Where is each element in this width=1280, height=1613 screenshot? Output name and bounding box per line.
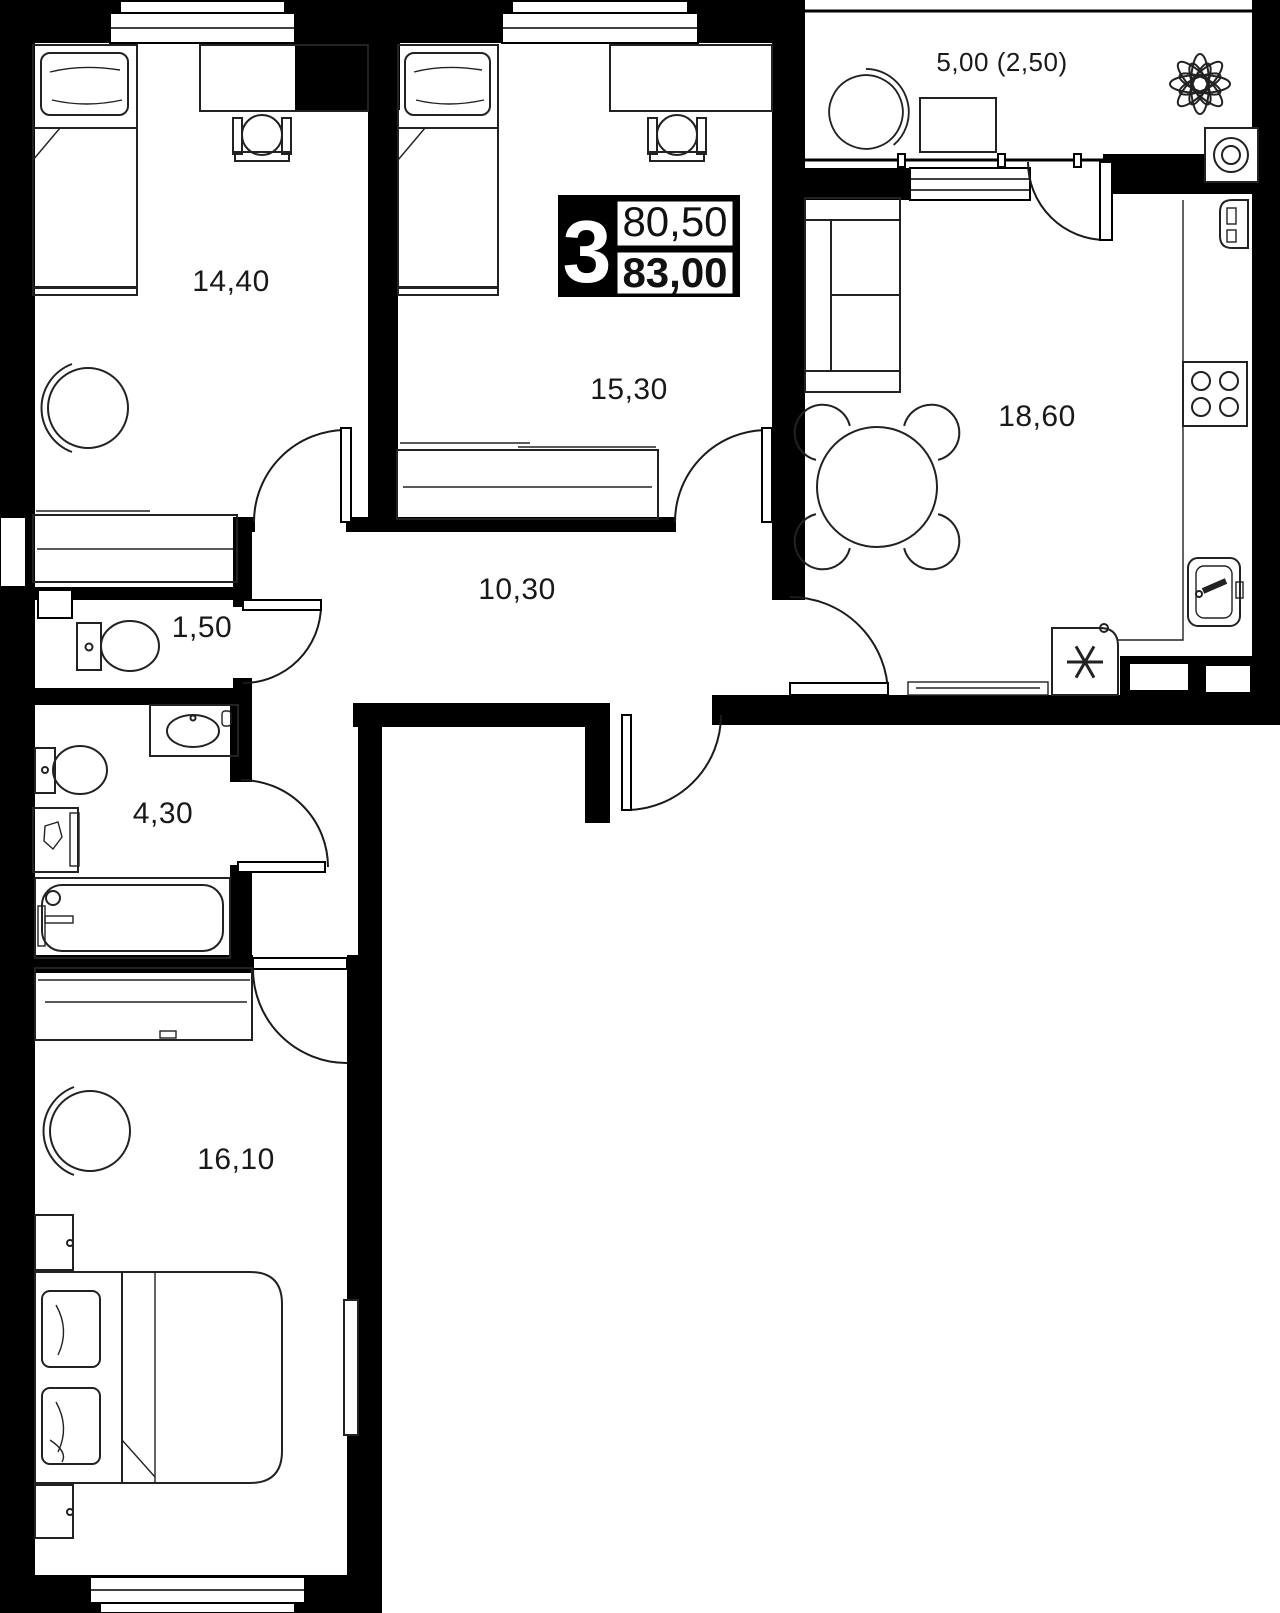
- lounge-chair-icon: [42, 364, 128, 452]
- door-bedroom-top-left-icon: [254, 428, 351, 522]
- door-wc-icon: [243, 600, 321, 683]
- room-area-label: 1,50: [172, 611, 232, 644]
- kitchen-sink-icon: [1188, 558, 1243, 626]
- door-entry-icon: [622, 715, 721, 810]
- nightstand-icon: [35, 1485, 73, 1538]
- balcony-table-icon: [920, 98, 996, 152]
- toilet-icon: [77, 621, 159, 671]
- badge-living-area: 80,50: [622, 198, 727, 245]
- sideboard-icon: [397, 443, 658, 519]
- fridge-icon: [1220, 200, 1248, 248]
- room-area-label: 4,30: [133, 797, 193, 830]
- area-badge: 3 80,50 83,00: [558, 195, 740, 301]
- room-area-label: 5,00 (2,50): [936, 47, 1067, 77]
- toilet-icon: [35, 746, 107, 794]
- single-bed-icon: [398, 45, 498, 295]
- room-bathroom: 4,30: [33, 705, 238, 958]
- room-wc: 1,50: [77, 611, 232, 671]
- room-area-label: 18,60: [998, 400, 1076, 433]
- door-kitchen-icon: [790, 597, 888, 695]
- dresser-icon: [33, 511, 237, 582]
- washer-icon: [33, 808, 79, 872]
- door-bathroom-icon: [238, 780, 328, 872]
- room-bedroom-top-left: 14,40: [33, 45, 368, 582]
- dining-chair-icon: [901, 511, 971, 581]
- washing-machine-icon: [1205, 128, 1258, 182]
- nightstand-icon: [35, 1215, 73, 1270]
- badge-rooms-count: 3: [563, 202, 612, 301]
- dining-chair-icon: [901, 393, 971, 463]
- door-balcony-icon: [1028, 162, 1112, 240]
- stove-icon: [1183, 362, 1247, 426]
- room-hallway: 10,30: [478, 573, 556, 606]
- bathroom-sink-icon: [150, 705, 238, 756]
- room-bedroom-bottom: 16,10: [35, 968, 358, 1538]
- single-bed-icon: [33, 45, 137, 295]
- balcony-chair-icon: [818, 59, 920, 162]
- room-area-label: 14,40: [192, 265, 270, 298]
- door-bedroom-bottom-icon: [253, 958, 347, 1063]
- door-bedroom-top-middle-icon: [675, 428, 772, 522]
- window-bedroom-bottom-icon: [90, 1577, 305, 1613]
- tv-icon: [344, 1300, 358, 1435]
- boiler-icon: [1052, 624, 1118, 695]
- lounge-chair-icon: [44, 1087, 130, 1175]
- room-area-label: 10,30: [478, 573, 556, 606]
- balcony-glazing-icon: [800, 11, 1255, 167]
- radiator-icon: [908, 682, 1048, 695]
- window-bedroom-top-left-icon: [110, 1, 295, 43]
- desk-chair-icon: [233, 115, 291, 161]
- window-kitchen-icon: [910, 168, 1030, 200]
- double-bed-icon: [35, 1272, 282, 1483]
- desk-icon: [610, 45, 772, 111]
- room-area-label: 15,30: [590, 373, 668, 406]
- bathtub-icon: [35, 878, 230, 958]
- floor-plan: 14,40 15,30: [0, 0, 1280, 1613]
- window-bedroom-top-middle-icon: [502, 1, 698, 43]
- kitchen-counter-icon: [1088, 200, 1183, 656]
- dining-table-icon: [817, 427, 937, 547]
- room-area-label: 16,10: [197, 1143, 275, 1176]
- sofa-icon: [805, 198, 900, 392]
- plant-icon: [1170, 54, 1230, 114]
- wardrobe-icon: [35, 968, 252, 1040]
- badge-total-area: 83,00: [622, 249, 727, 296]
- desk-chair-icon: [648, 115, 706, 161]
